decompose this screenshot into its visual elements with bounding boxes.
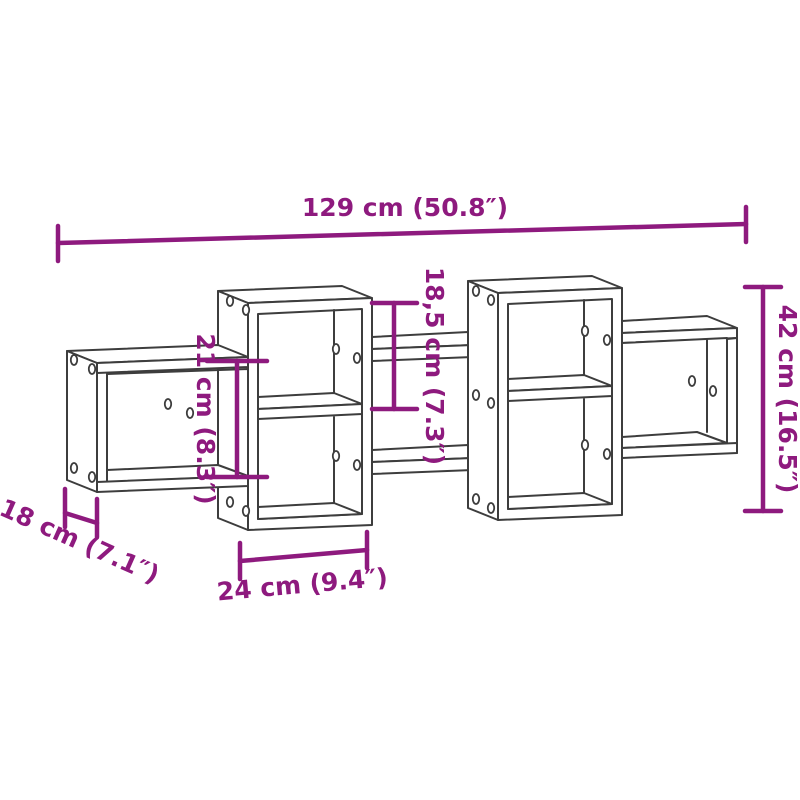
dimension-diagram: 129 cm (50.8″) 42 cm (16.5″) 18,5 cm (7.… <box>0 0 800 800</box>
screw-hole <box>243 506 249 516</box>
screw-hole <box>333 451 339 461</box>
diagram-canvas: 129 cm (50.8″) 42 cm (16.5″) 18,5 cm (7.… <box>0 0 800 800</box>
screw-hole <box>71 463 77 473</box>
screw-hole <box>488 398 494 408</box>
screw-hole <box>473 494 479 504</box>
screw-hole <box>243 305 249 315</box>
screw-hole <box>354 353 360 363</box>
screw-hole <box>488 295 494 305</box>
screw-hole <box>710 386 716 396</box>
box-small-left-opening <box>107 369 248 482</box>
screw-hole <box>89 364 95 374</box>
box-tall-right-opening <box>508 299 612 509</box>
dim-height-label: 42 cm (16.5″) <box>773 305 800 494</box>
screw-hole <box>488 503 494 513</box>
screw-hole <box>582 326 588 336</box>
screw-hole <box>227 296 233 306</box>
screw-hole <box>582 440 588 450</box>
box-small-right <box>622 316 737 458</box>
screw-hole <box>473 390 479 400</box>
screw-hole <box>71 355 77 365</box>
screw-hole <box>604 335 610 345</box>
screw-hole <box>354 460 360 470</box>
screw-hole <box>689 376 695 386</box>
screw-hole <box>604 449 610 459</box>
box-small-right-panel-front-face <box>727 338 737 453</box>
screw-hole <box>165 399 171 409</box>
screw-hole <box>89 472 95 482</box>
dim-width-label: 129 cm (50.8″) <box>302 193 508 222</box>
dim-left-compartment-label: 21 cm (8.3″) <box>191 333 220 504</box>
screw-hole <box>333 344 339 354</box>
dim-upper-compartment-label: 18,5 cm (7.3″) <box>420 267 449 465</box>
screw-hole <box>473 286 479 296</box>
screw-hole <box>227 497 233 507</box>
